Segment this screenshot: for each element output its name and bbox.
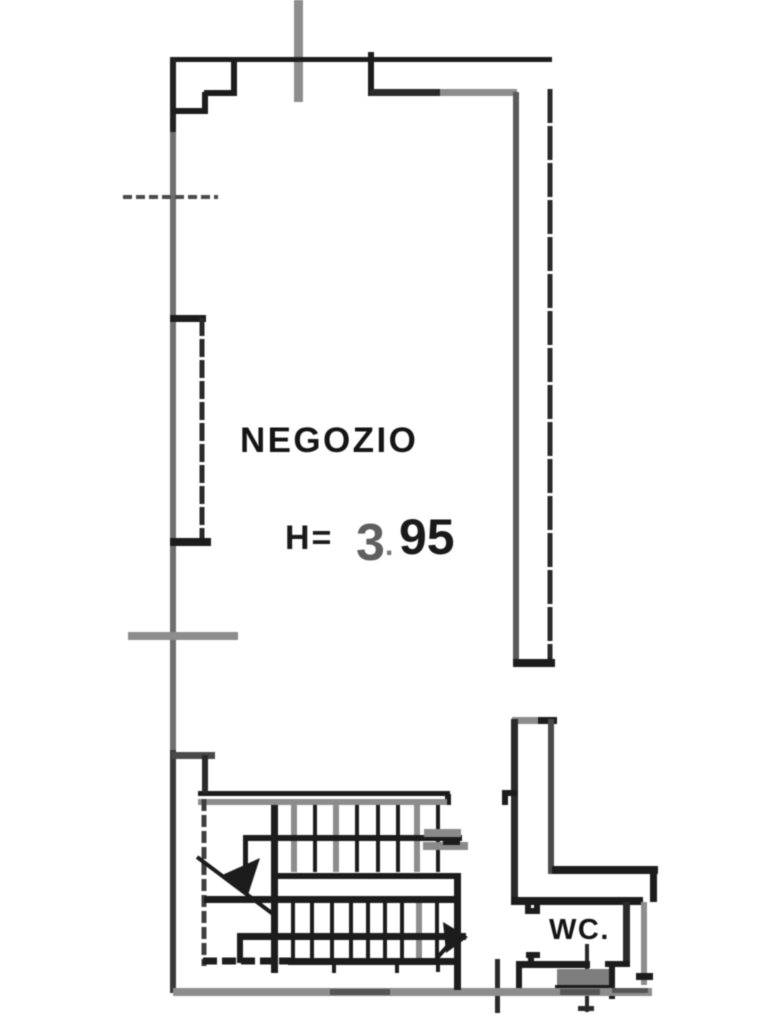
svg-text:H=: H=	[285, 519, 333, 557]
svg-text:.: .	[385, 529, 393, 562]
svg-text:95: 95	[399, 509, 455, 565]
svg-text:WC.: WC.	[549, 914, 610, 946]
svg-text:NEGOZIO: NEGOZIO	[240, 421, 418, 460]
svg-text:3: 3	[356, 514, 385, 572]
